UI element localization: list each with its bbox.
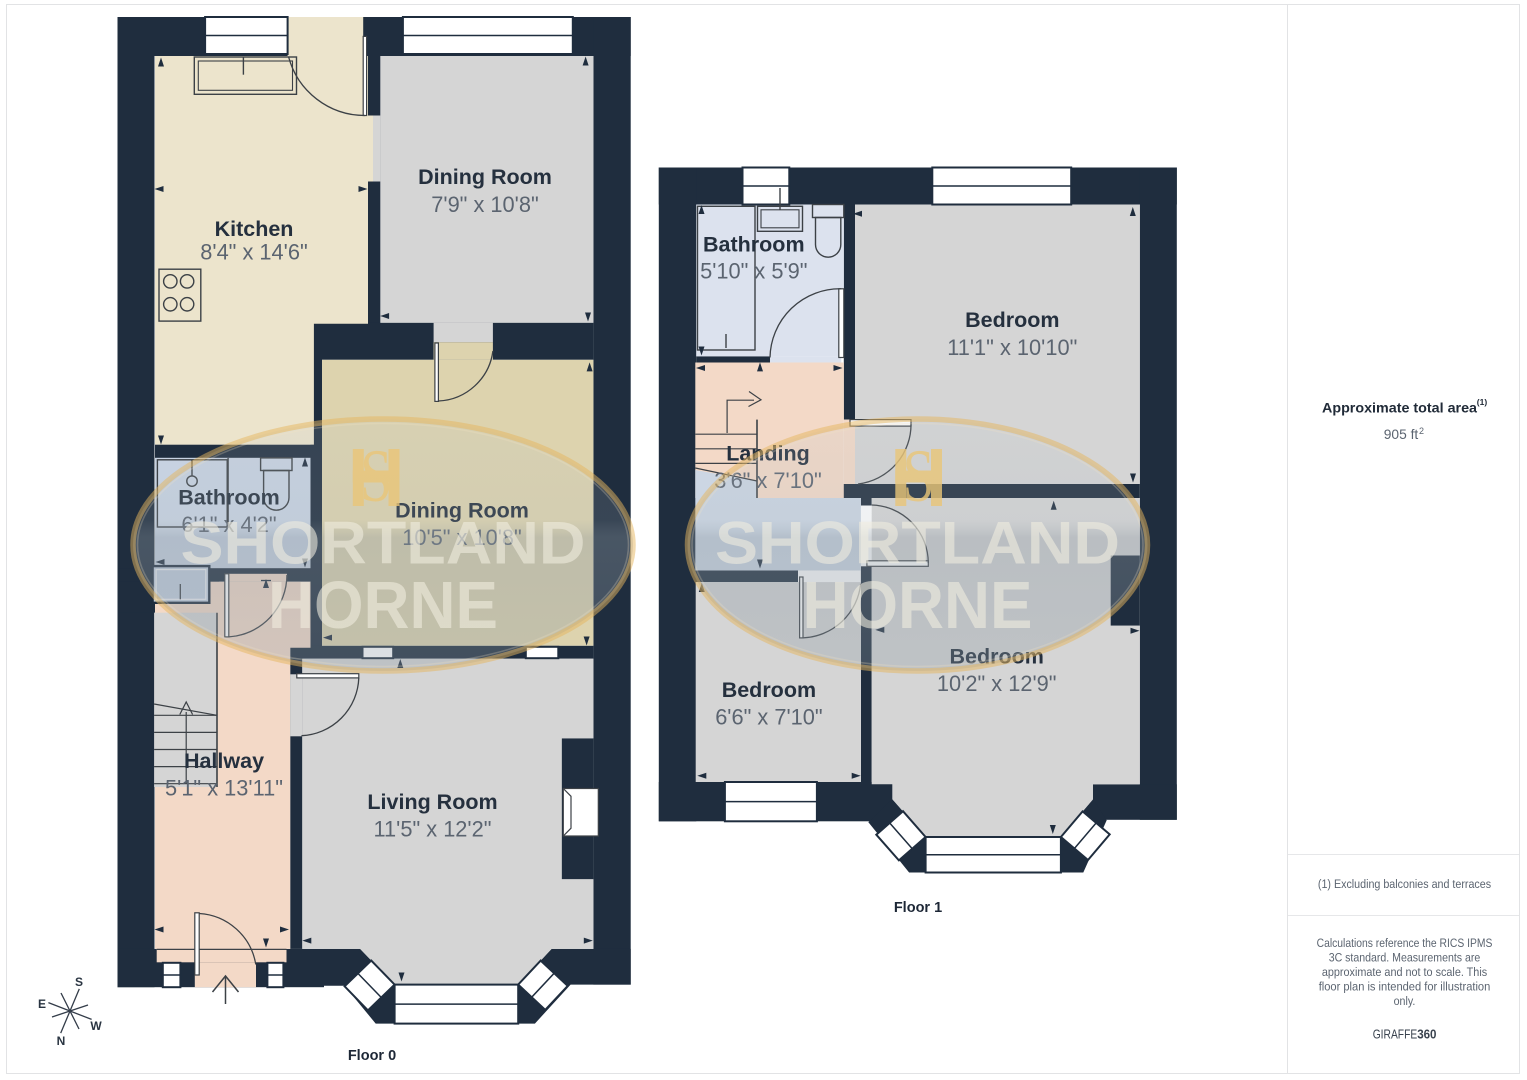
svg-text:Bathroom: Bathroom	[703, 233, 805, 257]
svg-text:N: N	[57, 1034, 66, 1048]
svg-text:2: 2	[1419, 426, 1424, 436]
svg-text:floor plan is intended for ill: floor plan is intended for illustration	[1319, 980, 1491, 994]
svg-text:approximate and not to scale.: approximate and not to scale. This	[1322, 965, 1487, 979]
svg-text:HORNE: HORNE	[803, 568, 1033, 643]
svg-text:W: W	[90, 1019, 102, 1033]
svg-text:S: S	[360, 434, 392, 518]
svg-text:360: 360	[1417, 1028, 1436, 1042]
svg-text:Calculations reference the RIC: Calculations reference the RICS IPMS	[1317, 936, 1493, 950]
svg-text:6'6" x 7'10": 6'6" x 7'10"	[715, 705, 822, 730]
svg-text:5'1" x 13'11": 5'1" x 13'11"	[165, 776, 283, 801]
svg-text:8'4" x 14'6": 8'4" x 14'6"	[200, 240, 307, 265]
svg-text:11'1" x 10'10": 11'1" x 10'10"	[947, 335, 1077, 360]
svg-text:3C standard. Measurements are: 3C standard. Measurements are	[1329, 951, 1481, 965]
svg-text:Hallway: Hallway	[184, 749, 264, 773]
svg-text:SHORTLAND: SHORTLAND	[181, 510, 586, 577]
svg-text:Living Room: Living Room	[367, 790, 497, 814]
svg-text:11'5" x 12'2": 11'5" x 12'2"	[374, 817, 492, 842]
svg-text:GIRAFFE: GIRAFFE	[1373, 1028, 1418, 1042]
svg-text:5'10" x 5'9": 5'10" x 5'9"	[700, 259, 807, 284]
svg-text:Floor 1: Floor 1	[894, 900, 942, 916]
svg-text:HORNE: HORNE	[268, 568, 498, 643]
svg-text:Kitchen: Kitchen	[215, 217, 294, 241]
svg-text:905 ft: 905 ft	[1384, 427, 1419, 442]
svg-text:E: E	[38, 997, 46, 1011]
svg-text:(1) Excluding balconies and te: (1) Excluding balconies and terraces	[1318, 877, 1491, 891]
svg-text:Bedroom: Bedroom	[965, 308, 1059, 332]
svg-text:Floor 0: Floor 0	[348, 1048, 396, 1064]
svg-text:S: S	[75, 975, 83, 989]
svg-text:10'2" x 12'9": 10'2" x 12'9"	[937, 671, 1057, 696]
svg-text:Bedroom: Bedroom	[722, 678, 816, 702]
svg-text:Dining Room: Dining Room	[418, 165, 552, 189]
svg-text:S: S	[902, 434, 934, 518]
svg-text:only.: only.	[1394, 994, 1416, 1008]
svg-text:(1): (1)	[1477, 397, 1488, 407]
svg-text:SHORTLAND: SHORTLAND	[715, 510, 1120, 577]
svg-text:Approximate total area: Approximate total area	[1322, 401, 1477, 416]
svg-text:7'9" x 10'8": 7'9" x 10'8"	[431, 192, 538, 217]
